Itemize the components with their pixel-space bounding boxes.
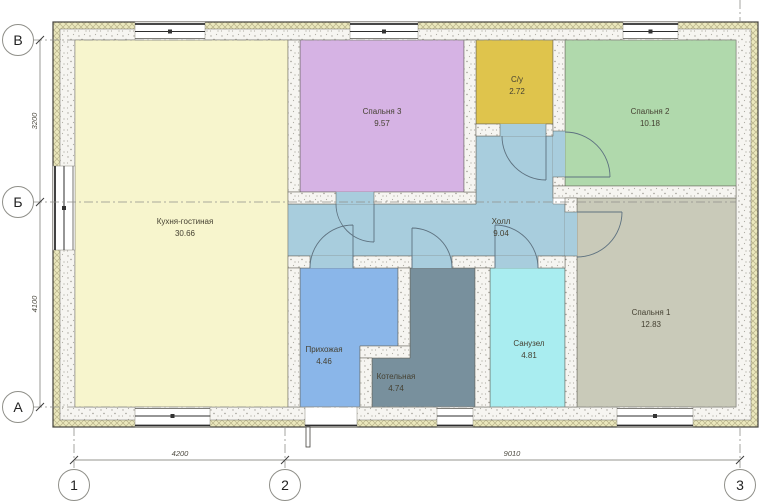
window [135, 22, 205, 40]
opening-bathroom [495, 256, 538, 268]
room-label-bedroom-3: Спальня 3 [363, 107, 402, 116]
axis-label-1: 1 [70, 477, 78, 493]
room-area-boiler: 4.74 [388, 384, 404, 393]
room-bathroom [490, 268, 565, 407]
opening-bedroom-2 [553, 131, 565, 177]
floor-plan-drawing: 3200 4100 4200 9010 В Б А 1 2 3 Кухня-го… [0, 0, 765, 502]
room-area-entry: 4.46 [316, 357, 332, 366]
opening-entry [310, 256, 353, 268]
opening-bedroom-1 [565, 212, 577, 256]
room-label-wc: С/у [511, 75, 523, 84]
window [135, 407, 210, 427]
wall [565, 198, 577, 212]
wall [288, 40, 300, 192]
window [53, 166, 75, 250]
room-label-entry: Прихожая [305, 345, 342, 354]
opening-wc [500, 124, 546, 136]
axis-label-v: В [13, 32, 22, 48]
room-area-wc: 2.72 [509, 87, 525, 96]
room-label-kitchen: Кухня-гостиная [157, 217, 214, 226]
room-label-bathroom: Санузел [513, 339, 544, 348]
floor-plan-canvas: 3200 4100 4200 9010 В Б А 1 2 3 Кухня-го… [0, 0, 765, 502]
room-area-kitchen: 30.66 [175, 229, 196, 238]
axis-label-2: 2 [281, 477, 289, 493]
room-bedroom-3 [300, 40, 464, 192]
room-area-bedroom-1: 12.83 [641, 320, 662, 329]
dimension-4200: 4200 [172, 449, 190, 458]
dimension-4100: 4100 [30, 295, 39, 313]
room-label-bedroom-2: Спальня 2 [631, 107, 670, 116]
wall [553, 186, 736, 198]
axis-label-b: Б [13, 194, 22, 210]
window [350, 22, 418, 40]
wall [288, 256, 310, 268]
dimension-9010: 9010 [504, 449, 522, 458]
axis-label-a: А [13, 399, 23, 415]
wall [538, 256, 565, 268]
wall [546, 124, 553, 136]
wall [452, 256, 495, 268]
window [617, 407, 693, 427]
wall [475, 268, 490, 407]
room-label-hall: Холл [492, 217, 511, 226]
dimension-3200: 3200 [30, 112, 39, 130]
wall [476, 124, 500, 136]
wall [553, 177, 565, 186]
wall [565, 256, 577, 407]
wall [288, 268, 300, 407]
window [623, 22, 678, 40]
room-area-bedroom-3: 9.57 [374, 119, 390, 128]
wall [360, 346, 410, 358]
room-label-boiler: Котельная [377, 372, 416, 381]
wall [553, 40, 565, 131]
wall [353, 256, 412, 268]
room-area-hall: 9.04 [493, 229, 509, 238]
room-bedroom-1 [577, 198, 736, 407]
opening-boiler [412, 256, 452, 268]
axis-label-3: 3 [736, 477, 744, 493]
room-area-bedroom-2: 10.18 [640, 119, 661, 128]
room-label-bedroom-1: Спальня 1 [632, 308, 671, 317]
entrance-door [305, 407, 357, 447]
wall [398, 268, 410, 346]
wall [360, 358, 372, 407]
room-area-bathroom: 4.81 [521, 351, 537, 360]
window [437, 407, 473, 427]
wall [464, 40, 476, 192]
